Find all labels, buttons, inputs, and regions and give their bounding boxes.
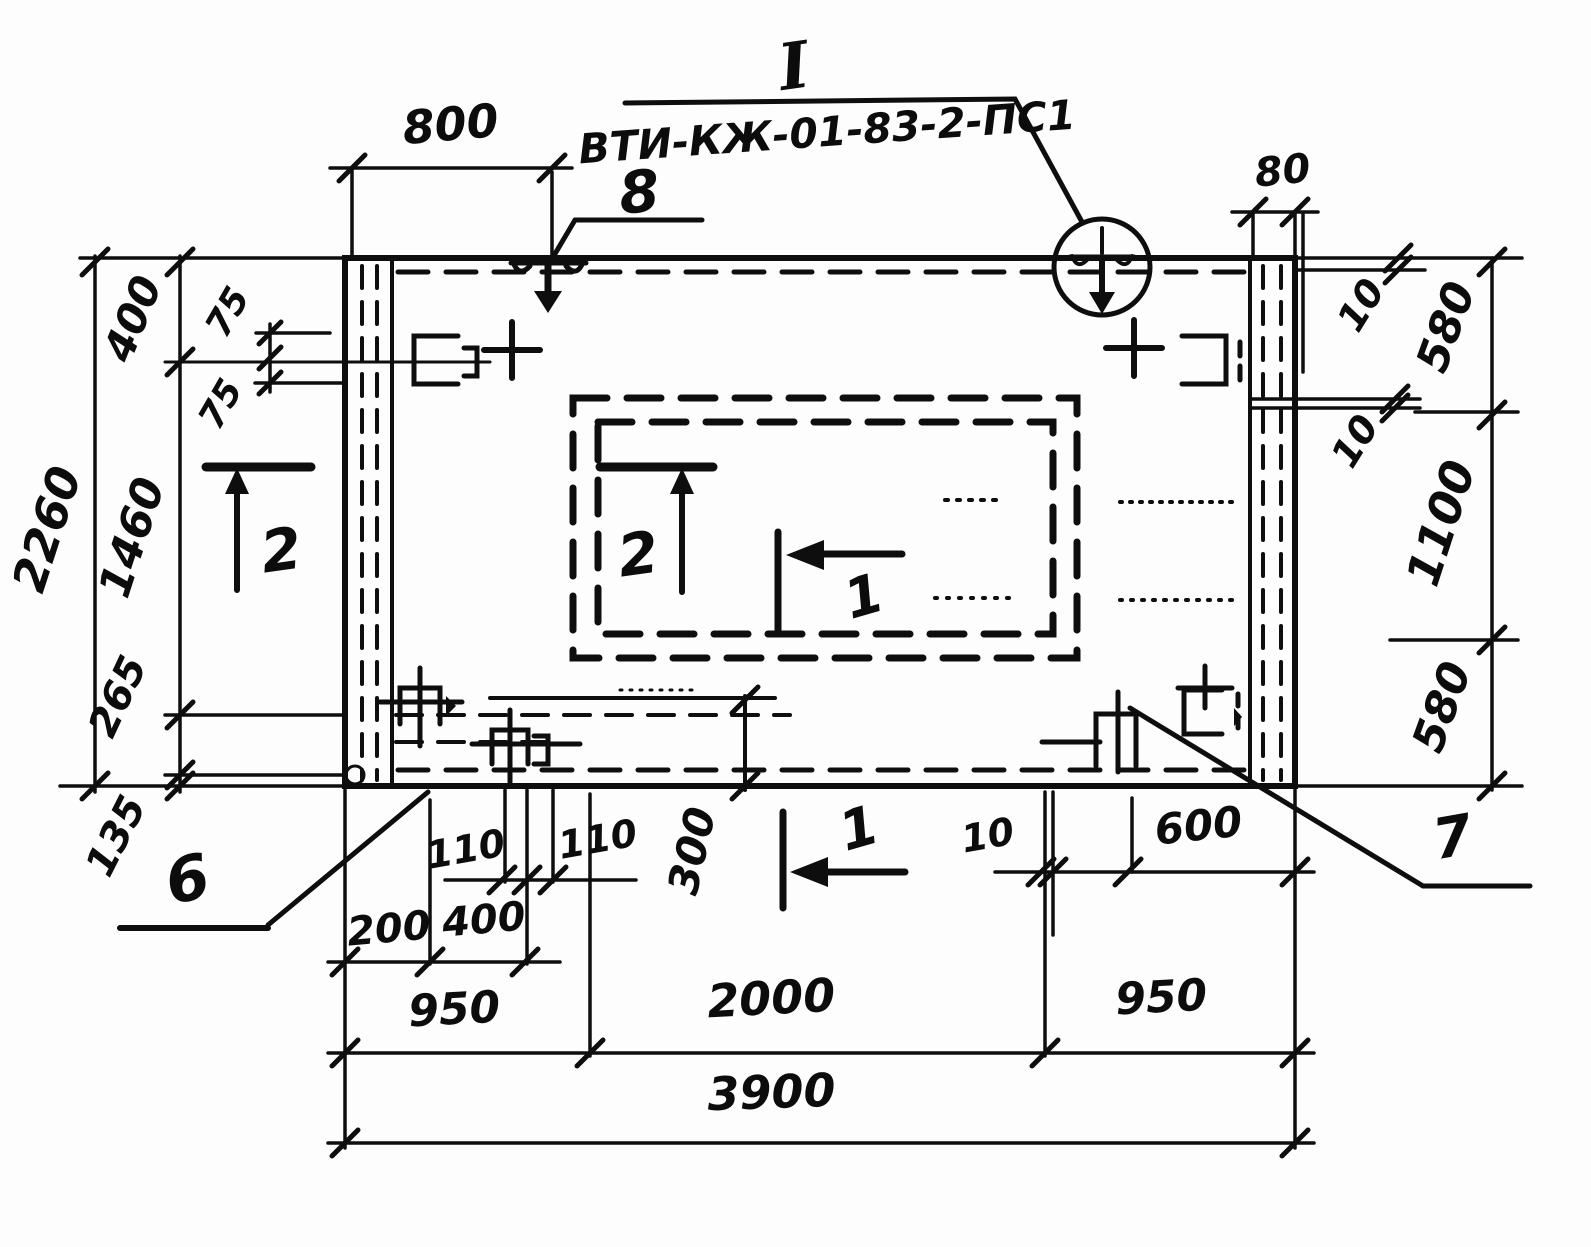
- embedded-plate-bottom-right-1: [1042, 692, 1136, 772]
- dim-10-bottom: 10: [958, 809, 1018, 862]
- dim-950-left: 950: [407, 982, 501, 1038]
- dim-580-right-top: 580: [1407, 275, 1486, 379]
- section-1-bottom-label: 1: [832, 793, 885, 864]
- detail-marker-label: I: [772, 27, 816, 106]
- embedded-plate-bottom-right-2: [1178, 666, 1242, 734]
- dim-3900: 3900: [707, 1063, 837, 1121]
- callout-6-label: 6: [159, 839, 216, 919]
- dim-75-upper: 75: [198, 280, 259, 344]
- section-2-inner-label: 2: [614, 518, 663, 591]
- detail-circle: [1054, 219, 1150, 315]
- dim-135: 135: [77, 788, 156, 883]
- dim-265: 265: [80, 649, 157, 744]
- dim-110-left: 110: [423, 821, 509, 878]
- dim-2000: 2000: [706, 968, 837, 1029]
- embedded-plate-top-right: [1106, 320, 1240, 384]
- lifting-loop-top-edge: [511, 262, 586, 313]
- callout-8-label: 8: [616, 156, 662, 227]
- section-2-left-label: 2: [257, 514, 306, 587]
- dim-110-right: 110: [555, 811, 641, 868]
- dim-600: 600: [1152, 797, 1244, 855]
- dim-300: 300: [658, 803, 725, 899]
- dim-950-right: 950: [1114, 970, 1208, 1026]
- dim-80: 80: [1253, 145, 1313, 197]
- blueprint-page: IВТИ-КЖ-01-83-2-ПС1867221180080105801011…: [0, 0, 1591, 1247]
- photocopy-noise: [620, 500, 1235, 690]
- callout-7-label: 7: [1428, 802, 1478, 873]
- dim-75-lower: 75: [191, 372, 252, 436]
- dim-580-right-bottom: 580: [1403, 655, 1482, 759]
- section-1-inner-label: 1: [837, 561, 890, 632]
- dim-2260: 2260: [1, 460, 92, 598]
- dim-1460: 1460: [89, 471, 175, 603]
- dim-400-bottom: 400: [439, 893, 527, 946]
- dim-200: 200: [345, 902, 432, 955]
- dim-400-left: 400: [93, 269, 172, 370]
- dim-1100: 1100: [1395, 454, 1486, 592]
- panel-drawing: IВТИ-КЖ-01-83-2-ПС1867221180080105801011…: [0, 0, 1591, 1247]
- dim-800: 800: [400, 93, 500, 155]
- panel-outline: [345, 258, 1295, 786]
- dim-10-right-mid: 10: [1322, 407, 1387, 475]
